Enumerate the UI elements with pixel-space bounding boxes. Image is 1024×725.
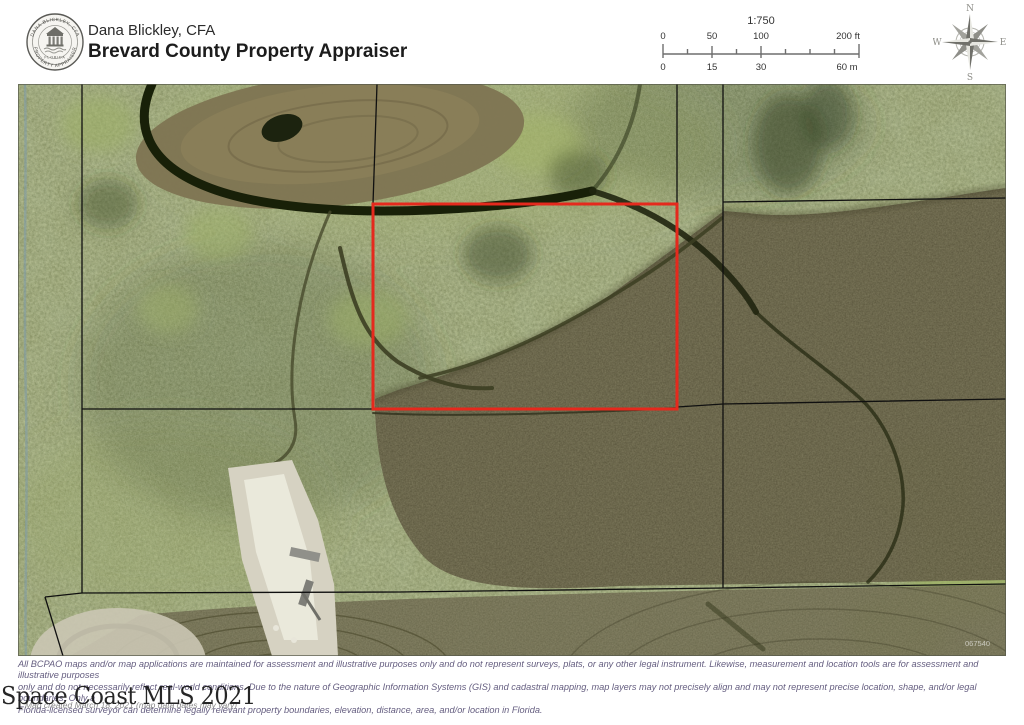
svg-text:0: 0 [660, 31, 665, 42]
svg-text:15: 15 [707, 62, 718, 72]
compass-rose: N E S W [933, 2, 1007, 82]
svg-text:100: 100 [753, 31, 769, 42]
scale-feet-labels: 0 50 100 200 ft [660, 31, 860, 42]
tile-label: 067540 [965, 639, 990, 648]
scale-bar-ticks [663, 44, 859, 58]
appraiser-name: Dana Blickley, CFA [88, 22, 215, 39]
ditch-line [25, 84, 27, 656]
svg-text:30: 30 [756, 62, 767, 72]
svg-text:50: 50 [707, 31, 718, 42]
mls-watermark: Space Coast MLS 2021 [1, 682, 256, 710]
disclaimer-line-1: All BCPAO maps and/or map applications a… [18, 659, 1010, 682]
scale-bar: 1:750 0 50 100 200 ft 0 15 [633, 8, 873, 72]
bcpao-map-page: DANA BLICKLEY, CFA PROPERTY APPRAISER FL… [0, 0, 1024, 725]
seal-outer-ring [27, 14, 83, 70]
compass-west-label: W [933, 38, 942, 48]
scale-ratio: 1:750 [747, 15, 775, 27]
svg-text:0: 0 [660, 62, 665, 72]
compass-south-label: S [967, 73, 973, 82]
svg-text:200 ft: 200 ft [836, 31, 860, 42]
svg-text:60 m: 60 m [836, 62, 857, 72]
seal-center-text: FLORIDA [44, 56, 65, 60]
compass-east-label: E [1000, 38, 1007, 48]
aerial-map: 067540 [18, 84, 1006, 656]
county-seal: DANA BLICKLEY, CFA PROPERTY APPRAISER FL… [24, 10, 86, 74]
compass-north-label: N [966, 4, 974, 14]
scale-meter-labels: 0 15 30 60 m [660, 62, 857, 72]
compass-star [942, 14, 998, 70]
page-title: Brevard County Property Appraiser [88, 41, 407, 63]
